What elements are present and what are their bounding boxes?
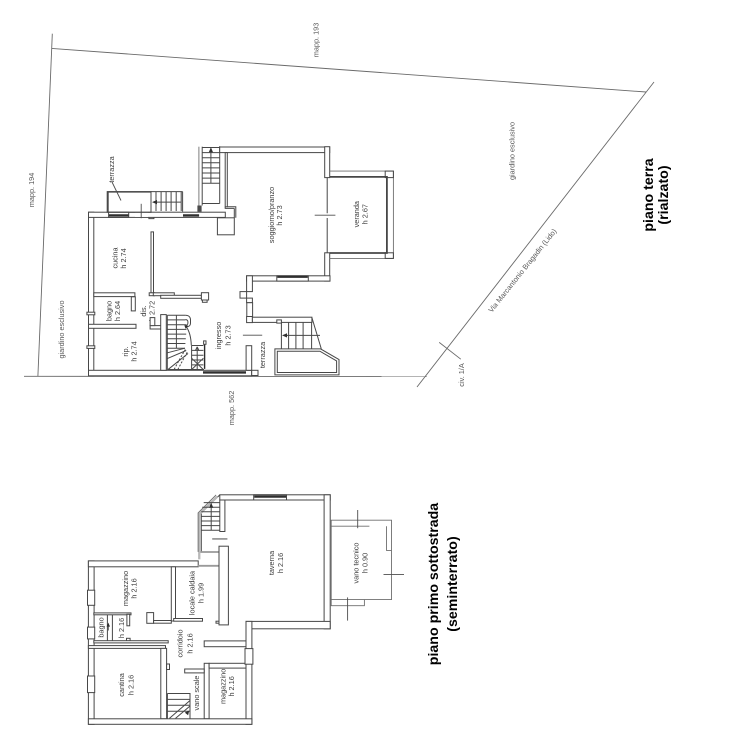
svg-text:locale caldaia: locale caldaia [187,570,196,615]
svg-text:piano primo sottostrada: piano primo sottostrada [426,503,442,665]
svg-text:h 2.67: h 2.67 [360,204,369,224]
svg-text:civ. 1/A: civ. 1/A [457,363,466,387]
svg-text:h 2.73: h 2.73 [224,325,233,345]
svg-text:h 2.16: h 2.16 [127,675,136,695]
svg-text:terrazza: terrazza [107,155,116,182]
svg-text:piano terra: piano terra [641,158,657,231]
svg-text:terrazza: terrazza [258,341,267,368]
svg-text:vano tecnico: vano tecnico [352,543,361,584]
svg-text:(rialzato): (rialzato) [656,165,672,224]
svg-text:h 2.16: h 2.16 [185,633,194,653]
svg-text:h 0.90: h 0.90 [361,553,370,573]
svg-text:giardino esclusivo: giardino esclusivo [57,300,66,358]
svg-text:h 2.16: h 2.16 [276,553,285,573]
svg-text:mapp. 194: mapp. 194 [27,173,36,207]
svg-text:corridoio: corridoio [175,630,184,658]
svg-text:ingresso: ingresso [214,322,223,350]
svg-text:mapp. 193: mapp. 193 [312,23,321,57]
svg-text:(seminterrato): (seminterrato) [445,536,461,632]
svg-text:taverna: taverna [267,550,276,575]
svg-text:cantina: cantina [117,672,126,696]
svg-text:h 2.74: h 2.74 [119,248,128,268]
svg-text:h 2.16: h 2.16 [227,676,236,696]
svg-text:h 2.73: h 2.73 [275,205,284,225]
svg-text:giardino esclusivo: giardino esclusivo [508,122,517,180]
svg-text:vano scale: vano scale [192,676,201,711]
svg-text:h 1.99: h 1.99 [197,583,206,603]
svg-text:h 2.74: h 2.74 [129,341,138,361]
svg-text:bagno: bagno [96,617,105,637]
svg-text:h 2.64: h 2.64 [113,301,122,321]
svg-text:mapp. 562: mapp. 562 [227,391,236,425]
svg-text:h 2.16: h 2.16 [130,578,139,598]
svg-text:h 2.16: h 2.16 [117,618,126,638]
